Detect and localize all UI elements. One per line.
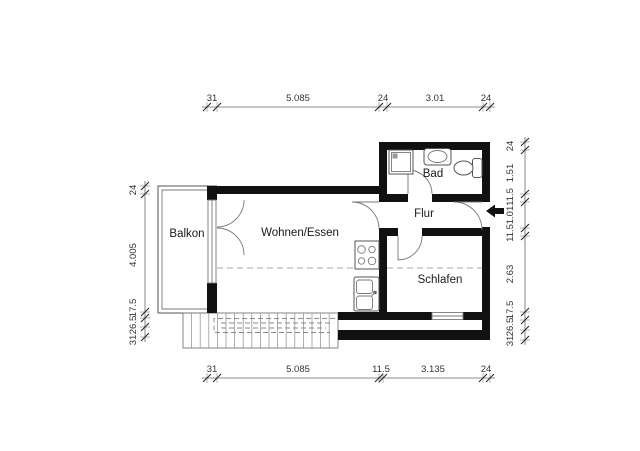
dim-left-0: 24 xyxy=(128,185,139,196)
entrance-arrow-icon xyxy=(486,205,504,218)
dim-right-0: 24 xyxy=(505,141,516,152)
shower-icon xyxy=(389,150,413,174)
floor-plan-canvas: Balkon Wohnen/Essen Flur Bad Schlafen 31… xyxy=(0,0,640,451)
kitchen-sink-icon xyxy=(354,277,379,311)
dimension-chain-bottom: 31 5.085 11.5 3.135 24 xyxy=(202,364,495,383)
dim-right-8: 31 xyxy=(505,336,516,347)
dim-left-2: 17.5 xyxy=(128,299,139,318)
dim-bottom-1: 5.085 xyxy=(286,364,310,375)
dim-right-1: 1.51 xyxy=(505,164,516,183)
dim-left-4: 31 xyxy=(128,335,139,346)
walls xyxy=(207,142,490,340)
dim-bottom-0: 31 xyxy=(207,364,218,375)
dimension-chain-left: 24 4.005 17.5 26.5 31 xyxy=(128,181,150,345)
doors xyxy=(217,170,482,260)
stairs-walkline-outer xyxy=(214,319,335,333)
room-label-balkon: Balkon xyxy=(169,228,204,240)
kitchen-fixtures xyxy=(354,241,379,311)
stairs-walkline-inner xyxy=(222,323,330,328)
room-label-wohnen: Wohnen/Essen xyxy=(261,227,339,239)
room-label-bad: Bad xyxy=(423,168,443,180)
dim-bottom-2: 11.5 xyxy=(372,364,390,375)
dim-left-3: 26.5 xyxy=(128,316,139,335)
dim-top-2: 24 xyxy=(378,93,389,104)
dim-right-5: 2.63 xyxy=(505,265,516,284)
stove-icon xyxy=(355,241,379,269)
dimension-chain-right: 24 1.51 11.5 1.01 11.5 2.63 17.5 26.5 31 xyxy=(505,137,530,346)
living-hall-door-swing xyxy=(352,202,379,229)
bedroom-door-swing xyxy=(398,236,422,260)
dim-top-1: 5.085 xyxy=(286,93,310,104)
room-label-flur: Flur xyxy=(414,208,434,220)
dim-left-1: 4.005 xyxy=(128,243,139,267)
dimension-chain-top: 31 5.085 24 3.01 24 xyxy=(202,93,495,112)
stairs-icon xyxy=(183,313,338,348)
entrance-door-swing xyxy=(454,202,482,230)
dim-right-2: 11.5 xyxy=(505,188,516,206)
dim-top-4: 24 xyxy=(481,93,492,104)
toilet-icon xyxy=(454,159,482,178)
balcony-door-lower-swing xyxy=(217,228,244,255)
floor-plan-drawing: Balkon Wohnen/Essen Flur Bad Schlafen 31… xyxy=(0,0,640,451)
dim-bottom-3: 3.135 xyxy=(421,364,445,375)
dim-bottom-4: 24 xyxy=(481,364,492,375)
balcony-door-upper-swing xyxy=(217,200,244,227)
dim-top-0: 31 xyxy=(207,93,218,104)
dim-top-3: 3.01 xyxy=(426,93,445,104)
washbasin-icon xyxy=(424,149,451,166)
room-label-schlafen: Schlafen xyxy=(418,274,463,286)
dim-right-6: 17.5 xyxy=(505,301,516,320)
dim-right-7: 26.5 xyxy=(505,318,516,337)
dim-right-3: 1.01 xyxy=(505,206,516,225)
dim-right-4: 11.5 xyxy=(505,224,516,242)
